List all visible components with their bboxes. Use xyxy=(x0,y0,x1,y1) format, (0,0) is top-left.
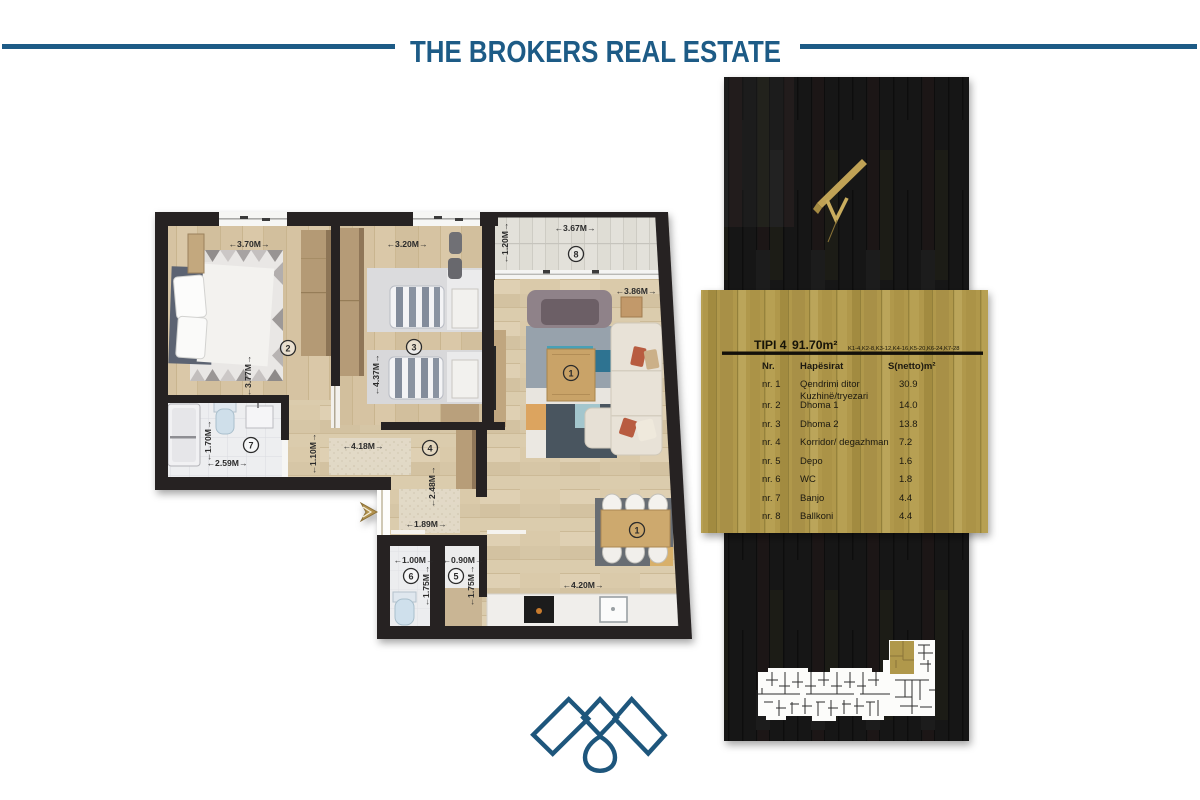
svg-text:nr. 8: nr. 8 xyxy=(762,511,781,522)
svg-text:Banjo: Banjo xyxy=(800,493,824,504)
svg-text:←4.37M→: ←4.37M→ xyxy=(371,354,381,395)
svg-text:7.2: 7.2 xyxy=(899,437,912,448)
svg-text:nr. 1: nr. 1 xyxy=(762,379,781,390)
svg-text:←4.18M→: ←4.18M→ xyxy=(342,441,383,451)
svg-text:30.9: 30.9 xyxy=(899,379,918,390)
svg-text:5: 5 xyxy=(453,571,458,581)
svg-text:2: 2 xyxy=(285,343,290,353)
svg-text:nr. 7: nr. 7 xyxy=(762,493,781,504)
svg-text:Dhoma 2: Dhoma 2 xyxy=(800,419,839,430)
svg-text:←1.89M→: ←1.89M→ xyxy=(405,519,446,529)
svg-text:1: 1 xyxy=(634,525,639,535)
svg-text:Dhoma 1: Dhoma 1 xyxy=(800,400,839,411)
svg-text:←1.20M→: ←1.20M→ xyxy=(500,222,510,263)
svg-text:S(netto)m²: S(netto)m² xyxy=(888,361,936,372)
svg-text:K1-4,K2-8,K3-12,K4-16,K5-20,K6: K1-4,K2-8,K3-12,K4-16,K5-20,K6-24,K7-28 xyxy=(848,346,960,352)
svg-text:nr. 4: nr. 4 xyxy=(762,437,781,448)
svg-text:←1.75M→: ←1.75M→ xyxy=(421,565,431,606)
svg-text:Qendrimi ditor: Qendrimi ditor xyxy=(800,379,860,390)
svg-text:←4.20M→: ←4.20M→ xyxy=(562,580,603,590)
svg-text:←2.59M→: ←2.59M→ xyxy=(206,458,247,468)
svg-text:←3.77M→: ←3.77M→ xyxy=(243,355,253,396)
svg-text:8: 8 xyxy=(573,249,578,259)
svg-text:1: 1 xyxy=(568,368,573,378)
svg-text:4.4: 4.4 xyxy=(899,511,912,522)
svg-text:6: 6 xyxy=(408,571,413,581)
svg-text:nr. 5: nr. 5 xyxy=(762,456,781,467)
svg-text:←1.00M→: ←1.00M→ xyxy=(393,555,434,565)
svg-text:Nr.: Nr. xyxy=(762,361,775,372)
svg-text:Hapësirat: Hapësirat xyxy=(800,361,844,372)
svg-text:TIPI 4: TIPI 4 xyxy=(754,338,787,352)
svg-text:1.6: 1.6 xyxy=(899,456,912,467)
svg-text:Ballkoni: Ballkoni xyxy=(800,511,833,522)
svg-text:Korridor/ degazhman: Korridor/ degazhman xyxy=(800,437,889,448)
svg-text:Depo: Depo xyxy=(800,456,823,467)
svg-text:91.70m²: 91.70m² xyxy=(792,338,837,352)
svg-text:1.8: 1.8 xyxy=(899,474,912,485)
svg-text:←3.20M→: ←3.20M→ xyxy=(386,239,427,249)
svg-text:14.0: 14.0 xyxy=(899,400,918,411)
svg-text:4.4: 4.4 xyxy=(899,493,912,504)
svg-text:←0.90M→: ←0.90M→ xyxy=(442,555,483,565)
svg-text:WC: WC xyxy=(800,474,816,485)
svg-text:7: 7 xyxy=(248,440,253,450)
svg-text:4: 4 xyxy=(427,443,432,453)
svg-text:←3.70M→: ←3.70M→ xyxy=(228,239,269,249)
svg-text:←1.75M→: ←1.75M→ xyxy=(466,565,476,606)
svg-text:nr. 3: nr. 3 xyxy=(762,419,781,430)
svg-text:←1.70M→: ←1.70M→ xyxy=(203,420,213,461)
svg-text:3: 3 xyxy=(411,342,416,352)
svg-text:←3.67M→: ←3.67M→ xyxy=(554,223,595,233)
svg-text:←1.10M→: ←1.10M→ xyxy=(308,433,318,474)
svg-text:←2.48M→: ←2.48M→ xyxy=(427,466,437,507)
svg-text:nr. 6: nr. 6 xyxy=(762,474,781,485)
svg-text:←3.86M→: ←3.86M→ xyxy=(615,286,656,296)
svg-text:13.8: 13.8 xyxy=(899,419,918,430)
svg-text:nr. 2: nr. 2 xyxy=(762,400,781,411)
